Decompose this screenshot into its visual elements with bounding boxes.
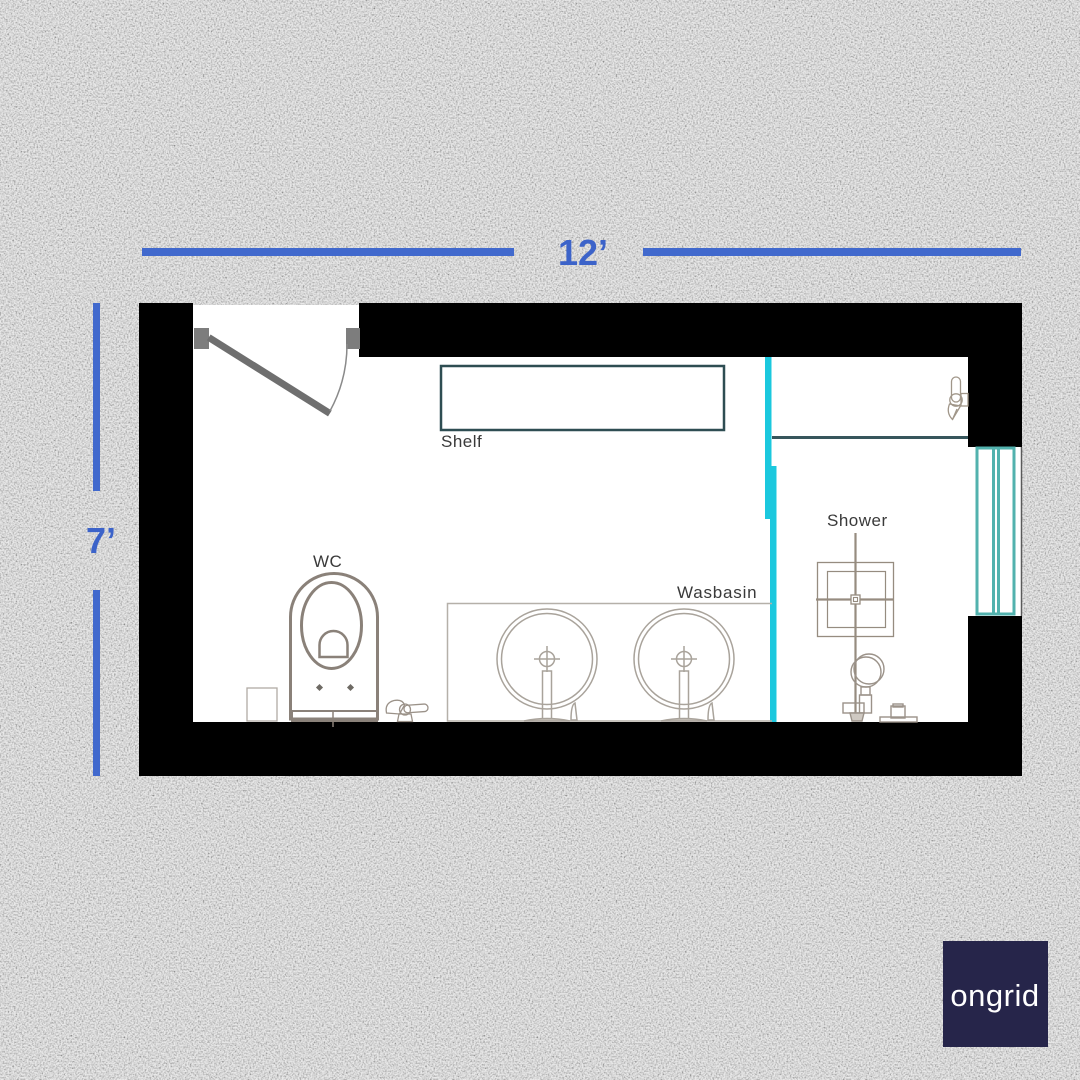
- svg-text:Shower: Shower: [827, 511, 888, 530]
- svg-text:ongrid: ongrid: [950, 978, 1039, 1013]
- svg-text:WC: WC: [313, 552, 342, 571]
- svg-text:12’: 12’: [558, 232, 608, 273]
- svg-text:Wasbasin: Wasbasin: [677, 583, 757, 602]
- svg-text:Shelf: Shelf: [441, 432, 482, 451]
- svg-text:7’: 7’: [86, 520, 116, 561]
